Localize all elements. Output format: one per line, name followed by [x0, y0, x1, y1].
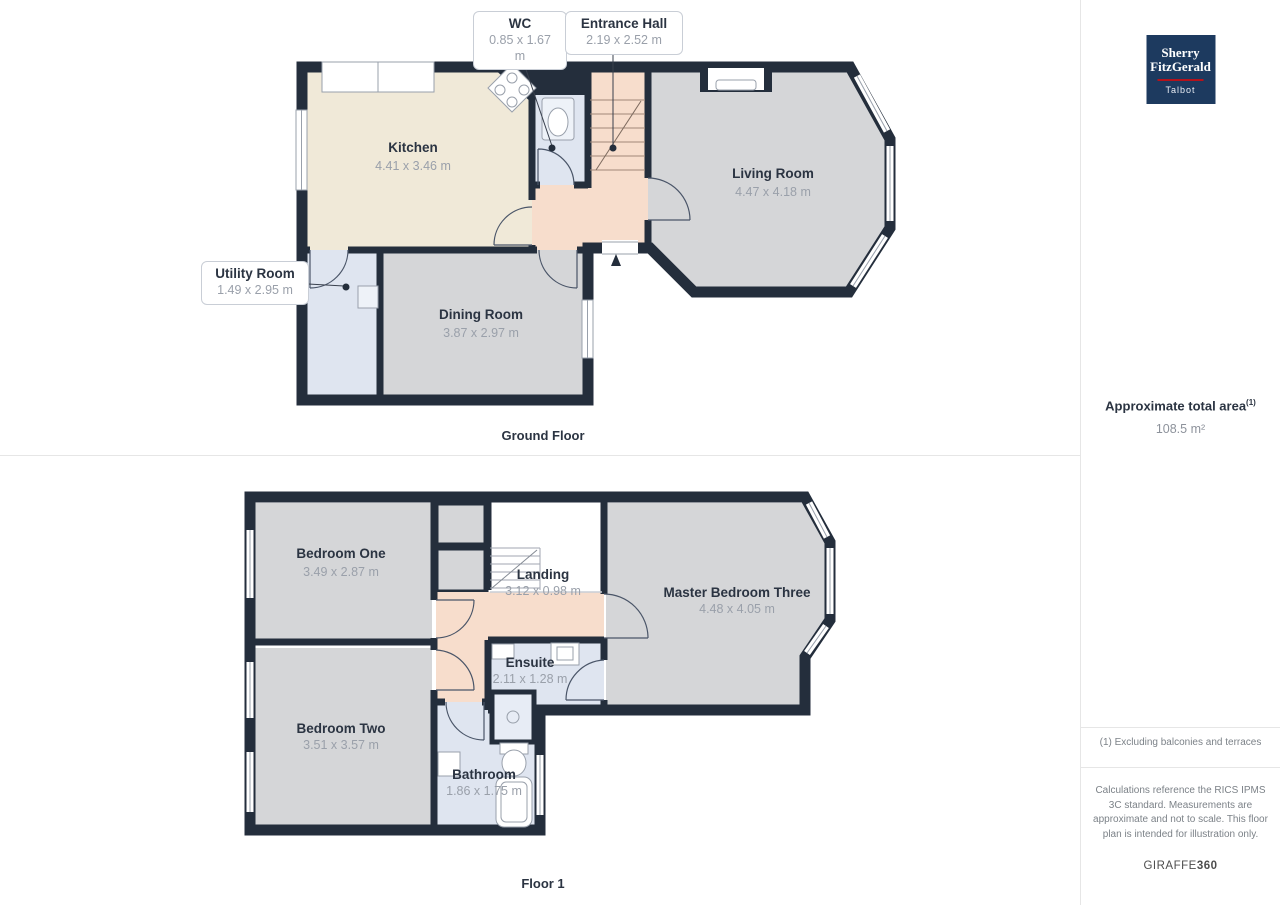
ground-floor-panel: WC 0.85 x 1.67 m Entrance Hall 2.19 x 2.… — [0, 0, 1080, 455]
logo-line1: Sherry — [1146, 46, 1215, 60]
utility-room-dims: 1.49 x 2.95 m — [212, 283, 298, 299]
ensuite-dims: 2.11 x 1.28 m — [493, 672, 568, 686]
sidebar: Sherry FitzGerald Talbot Approximate tot… — [1081, 0, 1280, 905]
utility-room-callout: Utility Room 1.49 x 2.95 m — [201, 261, 309, 305]
total-area-value: 108.5 m² — [1081, 422, 1280, 436]
floor-1-plan: Bedroom One 3.49 x 2.87 m Landing 3.12 x… — [0, 455, 1080, 905]
total-area-title: Approximate total area(1) — [1081, 398, 1280, 413]
disclaimer-text: Calculations reference the RICS IPMS 3C … — [1093, 784, 1268, 842]
floor-1-title: Floor 1 — [521, 876, 564, 891]
ground-floor-title: Ground Floor — [501, 428, 584, 443]
logo-rule — [1158, 79, 1204, 81]
front-door — [602, 240, 638, 266]
utility-room-label: Utility Room — [212, 266, 298, 283]
wc-callout: WC 0.85 x 1.67 m — [473, 11, 567, 70]
shower — [492, 692, 534, 742]
landing-room — [436, 592, 604, 640]
agency-logo: Sherry FitzGerald Talbot — [1146, 35, 1215, 104]
landing-label: Landing — [517, 567, 570, 582]
ensuite-label: Ensuite — [506, 655, 555, 670]
bathroom-label: Bathroom — [452, 767, 516, 782]
sidebar-rule — [1081, 727, 1280, 728]
floorplan-page: WC 0.85 x 1.67 m Entrance Hall 2.19 x 2.… — [0, 0, 1280, 905]
bathroom-dims: 1.86 x 1.75 m — [446, 784, 522, 798]
living-room-dims: 4.47 x 4.18 m — [735, 185, 811, 199]
logo-line3: Talbot — [1146, 85, 1215, 95]
area-footnote-marker: (1) — [1246, 398, 1256, 407]
wc-label: WC — [484, 16, 556, 33]
closet — [436, 503, 486, 545]
dining-room-dims: 3.87 x 2.97 m — [443, 326, 519, 340]
entrance-hall-callout: Entrance Hall 2.19 x 2.52 m — [565, 11, 683, 55]
footnote-text: (1) Excluding balconies and terraces — [1089, 736, 1272, 750]
kitchen-dims: 4.41 x 3.46 m — [375, 159, 451, 173]
sidebar-rule — [1081, 767, 1280, 768]
kitchen-label: Kitchen — [388, 140, 438, 155]
ensuite-sink — [551, 643, 579, 665]
bedroom-one-label: Bedroom One — [296, 546, 386, 561]
bedroom-two-dims: 3.51 x 3.57 m — [303, 738, 379, 752]
dining-room — [380, 250, 588, 400]
master-bedroom-dims: 4.48 x 4.05 m — [699, 602, 775, 616]
ground-floor-rooms — [302, 62, 890, 400]
bedroom-two-label: Bedroom Two — [297, 721, 386, 736]
landing-corridor — [436, 640, 488, 702]
landing-dims: 3.12 x 0.98 m — [505, 584, 581, 598]
logo-line2: FitzGerald — [1146, 60, 1215, 74]
entrance-hall-label: Entrance Hall — [576, 16, 672, 33]
entrance-hall-dims: 2.19 x 2.52 m — [576, 33, 672, 49]
bedroom-one-dims: 3.49 x 2.87 m — [303, 565, 379, 579]
closet — [436, 548, 486, 592]
total-area-block: Approximate total area(1) 108.5 m² — [1081, 398, 1280, 436]
dining-room-label: Dining Room — [439, 307, 523, 322]
living-room-label: Living Room — [732, 166, 814, 181]
utility-boiler — [358, 286, 378, 308]
giraffe360-brand: GIRAFFE360 — [1081, 860, 1280, 872]
master-bedroom-label: Master Bedroom Three — [663, 585, 811, 600]
panel-divider — [0, 455, 1080, 456]
floor-1-panel: Bedroom One 3.49 x 2.87 m Landing 3.12 x… — [0, 455, 1080, 905]
chimney-breast — [700, 62, 772, 92]
wc-dims: 0.85 x 1.67 m — [484, 33, 556, 64]
